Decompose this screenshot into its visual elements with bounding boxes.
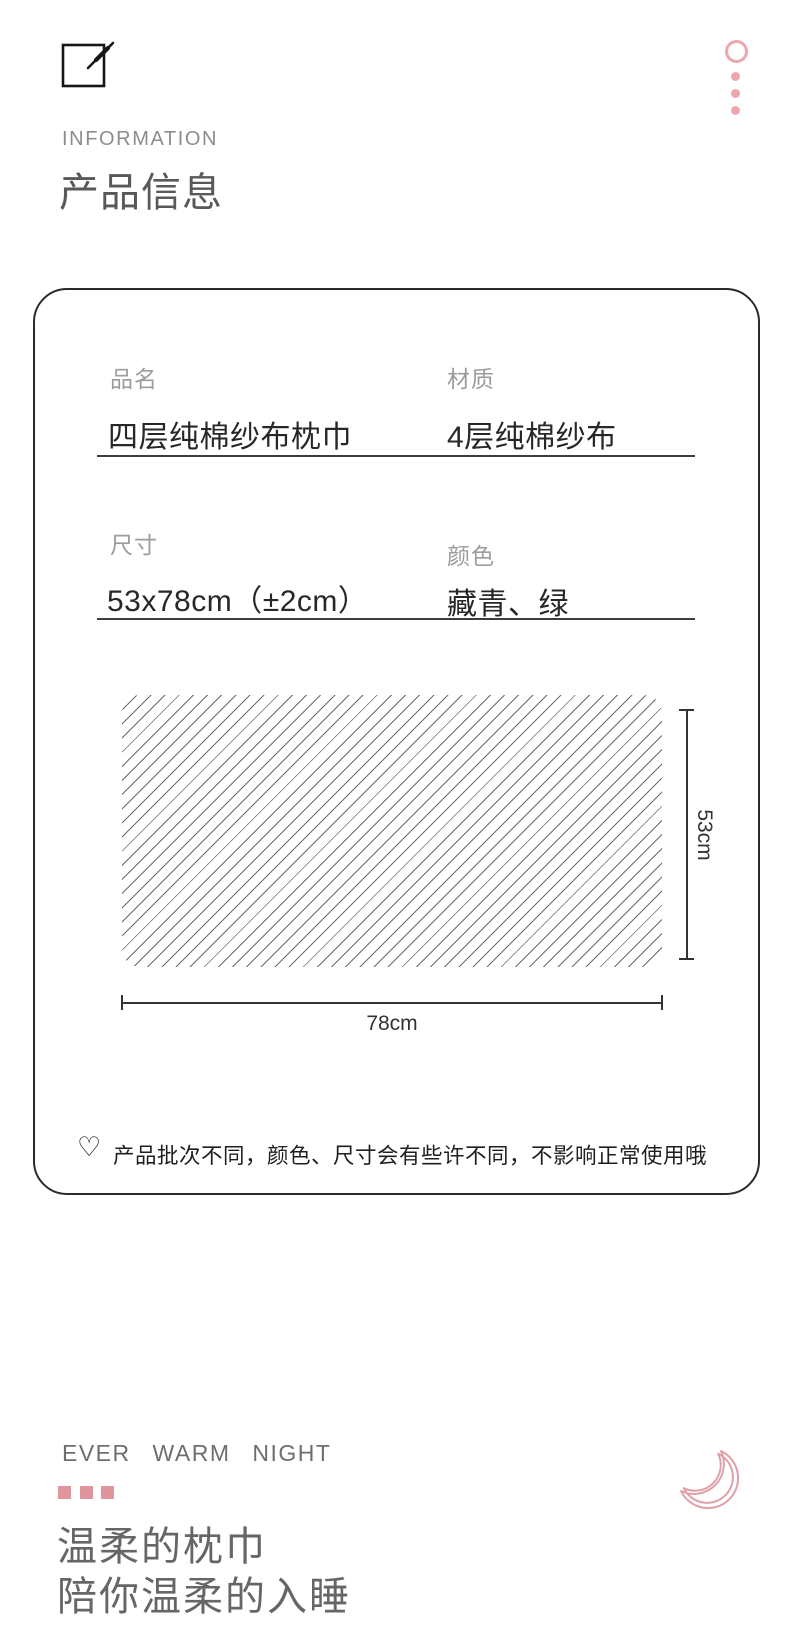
ring-and-dots-icon (724, 40, 746, 115)
dot-shape (731, 106, 740, 115)
dot-shape (731, 72, 740, 81)
dot-shape (731, 89, 740, 98)
square-shape (101, 1486, 114, 1499)
heart-outline-icon: ♡ (77, 1132, 101, 1163)
field-value-size: 53x78cm（±2cm） (107, 576, 368, 620)
field-value-name: 四层纯棉纱布枕巾 (108, 412, 352, 456)
field-label-color: 颜色 (447, 537, 495, 571)
field-value-color: 藏青、绿 (447, 579, 569, 623)
field-label-material: 材质 (447, 360, 495, 394)
dimension-cap (679, 958, 694, 960)
field-label-size: 尺寸 (110, 526, 158, 560)
dimension-cap (661, 995, 663, 1010)
square-shape (80, 1486, 93, 1499)
crescent-moon-icon (672, 1438, 744, 1515)
page-title: 产品信息 (59, 160, 223, 218)
pencil-square-icon (60, 38, 118, 95)
field-value-material: 4层纯棉纱布 (447, 412, 617, 456)
product-info-card: 品名 四层纯棉纱布枕巾 材质 4层纯棉纱布 尺寸 53x78cm（±2cm） 颜… (33, 288, 760, 1195)
height-dimension-line (686, 710, 688, 960)
field-label-name: 品名 (110, 360, 158, 394)
batch-note-text: 产品批次不同，颜色、尺寸会有些许不同，不影响正常使用哦 (113, 1139, 707, 1170)
square-shape (58, 1486, 71, 1499)
footer-tagline: EVER WARM NIGHT (62, 1440, 331, 1467)
width-dimension-label: 78cm (122, 1012, 662, 1036)
footer-heading-line2: 陪你温柔的入睡 (57, 1564, 351, 1622)
divider-line (97, 455, 695, 457)
divider-line (97, 618, 695, 620)
section-eyebrow: INFORMATION (62, 128, 218, 151)
height-dimension-label: 53cm (692, 809, 716, 860)
width-dimension-line (122, 1002, 662, 1004)
hatched-fabric-diagram (122, 695, 662, 967)
product-info-page: INFORMATION 产品信息 品名 四层纯棉纱布枕巾 材质 4层纯棉纱布 尺… (0, 0, 790, 1632)
ring-shape (725, 40, 748, 63)
pink-squares-decoration (58, 1486, 114, 1499)
